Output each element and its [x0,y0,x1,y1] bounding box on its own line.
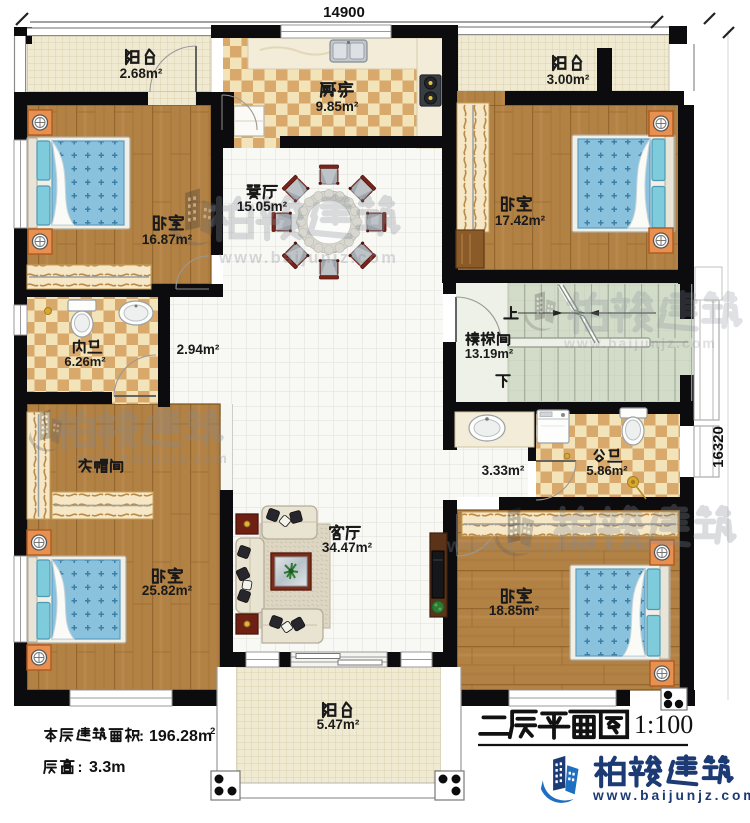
svg-text:www.baijunjz.com: www.baijunjz.com [563,335,717,351]
svg-text:9.85m²: 9.85m² [316,99,359,114]
svg-text:5.86m²: 5.86m² [586,463,628,478]
svg-text:13.19m²: 13.19m² [465,346,514,361]
svg-text:www.baijunjz.com: www.baijunjz.com [446,536,654,557]
svg-text:2.68m²: 2.68m² [120,66,163,81]
svg-text:25.82m²: 25.82m² [142,583,193,598]
svg-text:2.94m²: 2.94m² [177,342,220,357]
svg-text::: : [78,759,83,776]
svg-text:196.28m: 196.28m [149,728,212,745]
svg-text:5.47m²: 5.47m² [317,717,360,732]
svg-text:14900: 14900 [323,4,365,21]
svg-text:www.baijunjz.com: www.baijunjz.com [592,788,750,803]
svg-text:3.3m: 3.3m [89,759,125,776]
svg-text:3.33m²: 3.33m² [482,463,525,478]
svg-text:16.87m²: 16.87m² [142,232,193,247]
svg-text:6.26m²: 6.26m² [64,354,106,369]
svg-text:15.05m²: 15.05m² [237,199,288,214]
svg-text:3.00m²: 3.00m² [547,72,590,87]
svg-text::: : [139,728,144,745]
svg-text:2: 2 [210,726,215,737]
svg-text:18.85m²: 18.85m² [489,603,540,618]
svg-text:1:100: 1:100 [634,710,693,739]
svg-text:17.42m²: 17.42m² [495,213,546,228]
svg-text:16320: 16320 [710,426,727,468]
svg-text:www.baijunjz.com: www.baijunjz.com [218,249,398,267]
svg-text:34.47m²: 34.47m² [322,540,373,555]
